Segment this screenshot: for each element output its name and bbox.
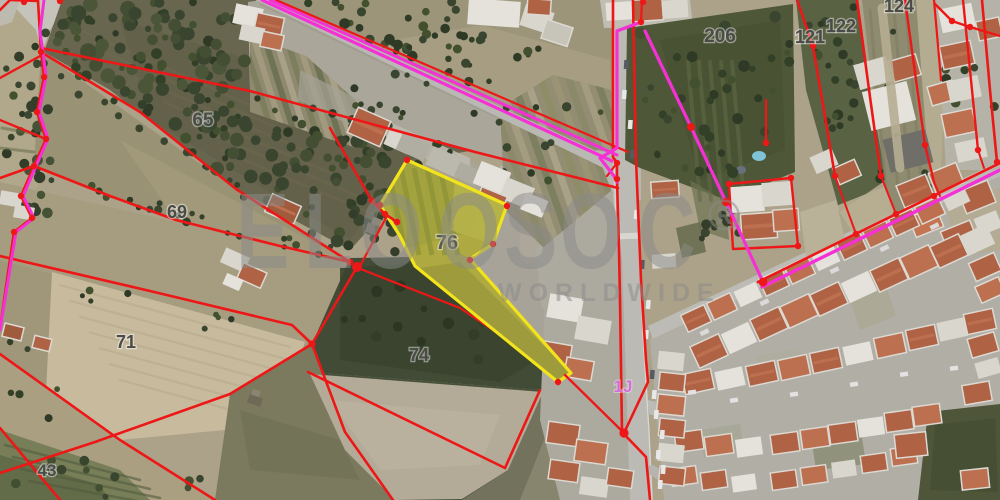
svg-text:206: 206 xyxy=(704,26,736,47)
svg-text:O: O xyxy=(438,171,500,292)
svg-text:1J: 1J xyxy=(614,377,633,396)
svg-text:®: ® xyxy=(708,191,740,240)
svg-text:122: 122 xyxy=(826,16,856,36)
svg-text:E: E xyxy=(236,171,289,292)
svg-text:71: 71 xyxy=(116,332,136,352)
svg-text:43: 43 xyxy=(38,461,57,480)
svg-text:65: 65 xyxy=(192,110,214,131)
svg-text:C: C xyxy=(638,171,696,292)
svg-text:O: O xyxy=(360,171,422,292)
svg-text:WORLDWIDE: WORLDWIDE xyxy=(498,279,721,307)
svg-text:S: S xyxy=(504,171,557,292)
svg-text:124: 124 xyxy=(884,0,914,16)
svg-text:69: 69 xyxy=(167,202,187,222)
svg-text:L: L xyxy=(304,171,353,292)
svg-text:O: O xyxy=(560,171,622,292)
svg-text:121: 121 xyxy=(795,27,825,47)
svg-text:74: 74 xyxy=(409,345,429,365)
